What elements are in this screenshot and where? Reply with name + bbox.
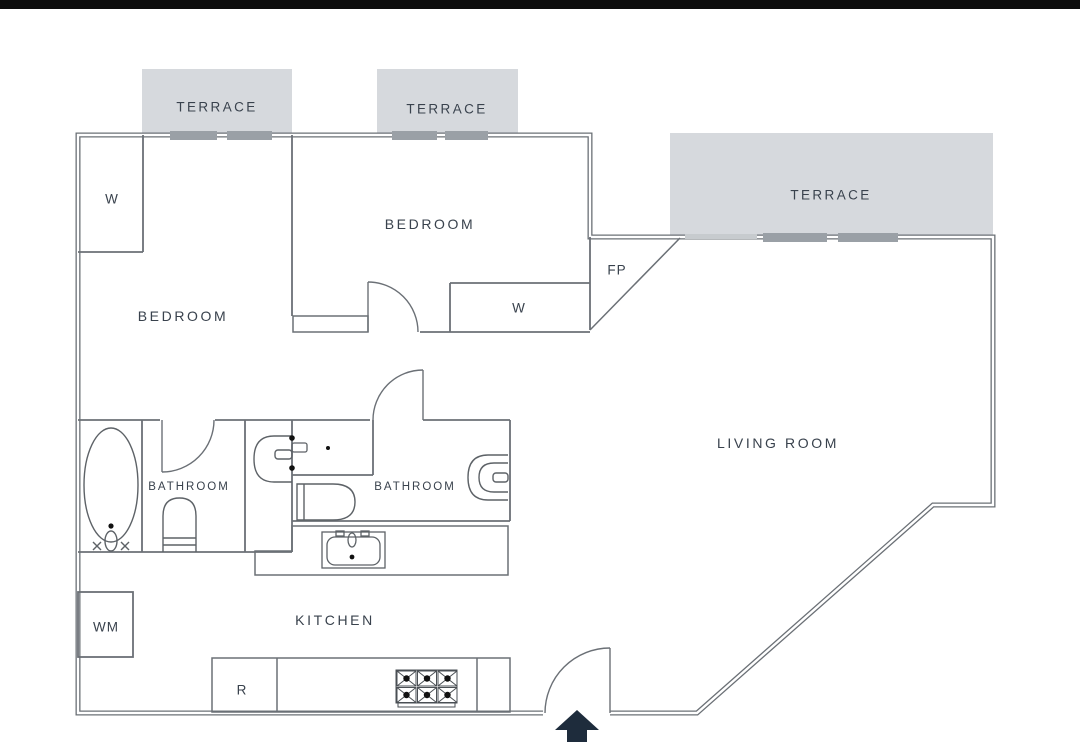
- stove-icon: [396, 670, 457, 707]
- doors: [162, 282, 610, 713]
- terrace-3-label: TERRACE: [790, 188, 871, 203]
- fireplace-label: FP: [607, 263, 626, 278]
- window-icon: [838, 233, 898, 242]
- door-bedroom-2: [368, 282, 418, 332]
- window-icon: [170, 131, 217, 140]
- room-label-bedroom-2: BEDROOM: [385, 216, 476, 232]
- fireplace-icon: [590, 238, 680, 330]
- window-icon: [685, 234, 757, 239]
- refrigerator-label: R: [237, 683, 248, 698]
- shower-icon: [292, 443, 330, 452]
- door-bathroom-1: [162, 420, 214, 472]
- bathtub-icon: [84, 428, 138, 551]
- window-icon: [445, 131, 488, 140]
- floor-plan-page: TERRACE TERRACE TERRACE BEDROOM BEDROOM …: [0, 0, 1080, 742]
- door-bathroom-2: [373, 370, 423, 420]
- room-label-living-room: LIVING ROOM: [717, 435, 839, 451]
- washbasin-icon: [468, 455, 508, 500]
- washbasin-icon: [254, 435, 295, 482]
- terrace-3-area: [670, 133, 993, 235]
- terrace-areas: [142, 69, 993, 235]
- window-icon: [392, 131, 437, 140]
- room-label-bathroom-2: BATHROOM: [374, 481, 456, 493]
- floor-plan-drawing: [0, 0, 1080, 742]
- window-icon: [763, 233, 827, 242]
- top-border-strip: [0, 0, 1080, 9]
- room-label-bedroom-1: BEDROOM: [138, 308, 229, 324]
- kitchen-sink-icon: [322, 531, 385, 568]
- room-label-bathroom-1: BATHROOM: [148, 481, 230, 493]
- washing-machine-label: WM: [93, 620, 119, 635]
- toilet-icon: [297, 484, 355, 520]
- wardrobe-2-label: W: [512, 301, 526, 316]
- terrace-1-label: TERRACE: [176, 100, 257, 115]
- entrance-arrow-icon: [555, 710, 599, 742]
- door-entrance: [545, 648, 610, 713]
- room-label-kitchen: KITCHEN: [295, 612, 375, 628]
- window-icon: [227, 131, 272, 140]
- toilet-icon: [163, 498, 196, 552]
- wardrobe-1-label: W: [105, 192, 119, 207]
- terrace-2-label: TERRACE: [406, 102, 487, 117]
